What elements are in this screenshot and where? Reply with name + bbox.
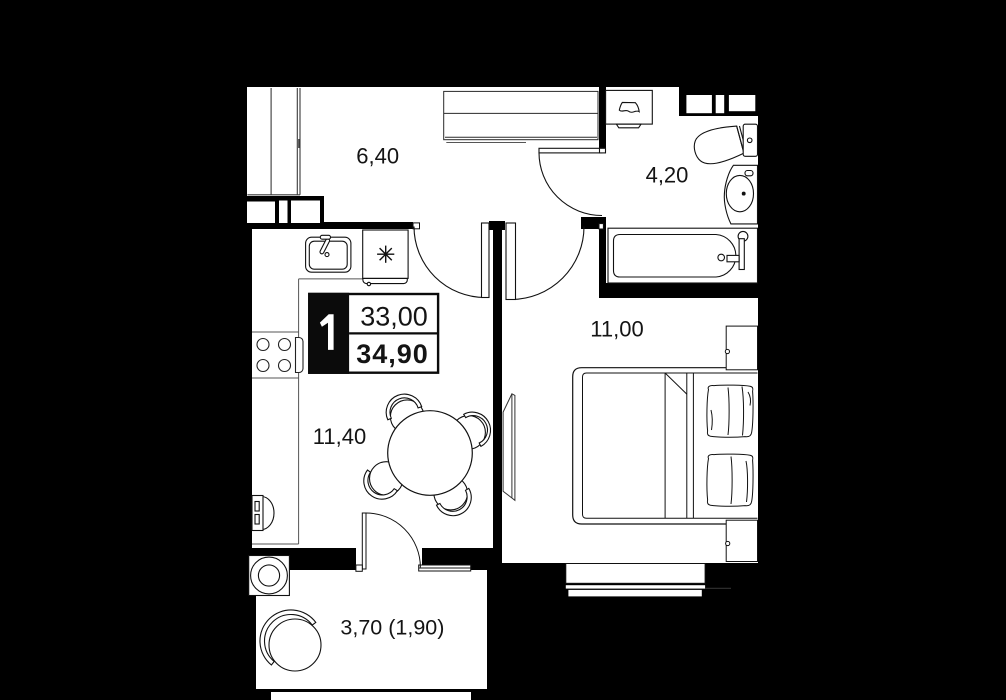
svg-text:3,70 (1,90): 3,70 (1,90) — [340, 616, 444, 640]
svg-text:34,90: 34,90 — [356, 339, 429, 369]
svg-text:11,00: 11,00 — [590, 316, 643, 341]
svg-text:11,40: 11,40 — [313, 424, 366, 449]
svg-text:4,20: 4,20 — [646, 163, 689, 188]
svg-text:33,00: 33,00 — [360, 301, 428, 331]
svg-text:6,40: 6,40 — [356, 144, 399, 169]
